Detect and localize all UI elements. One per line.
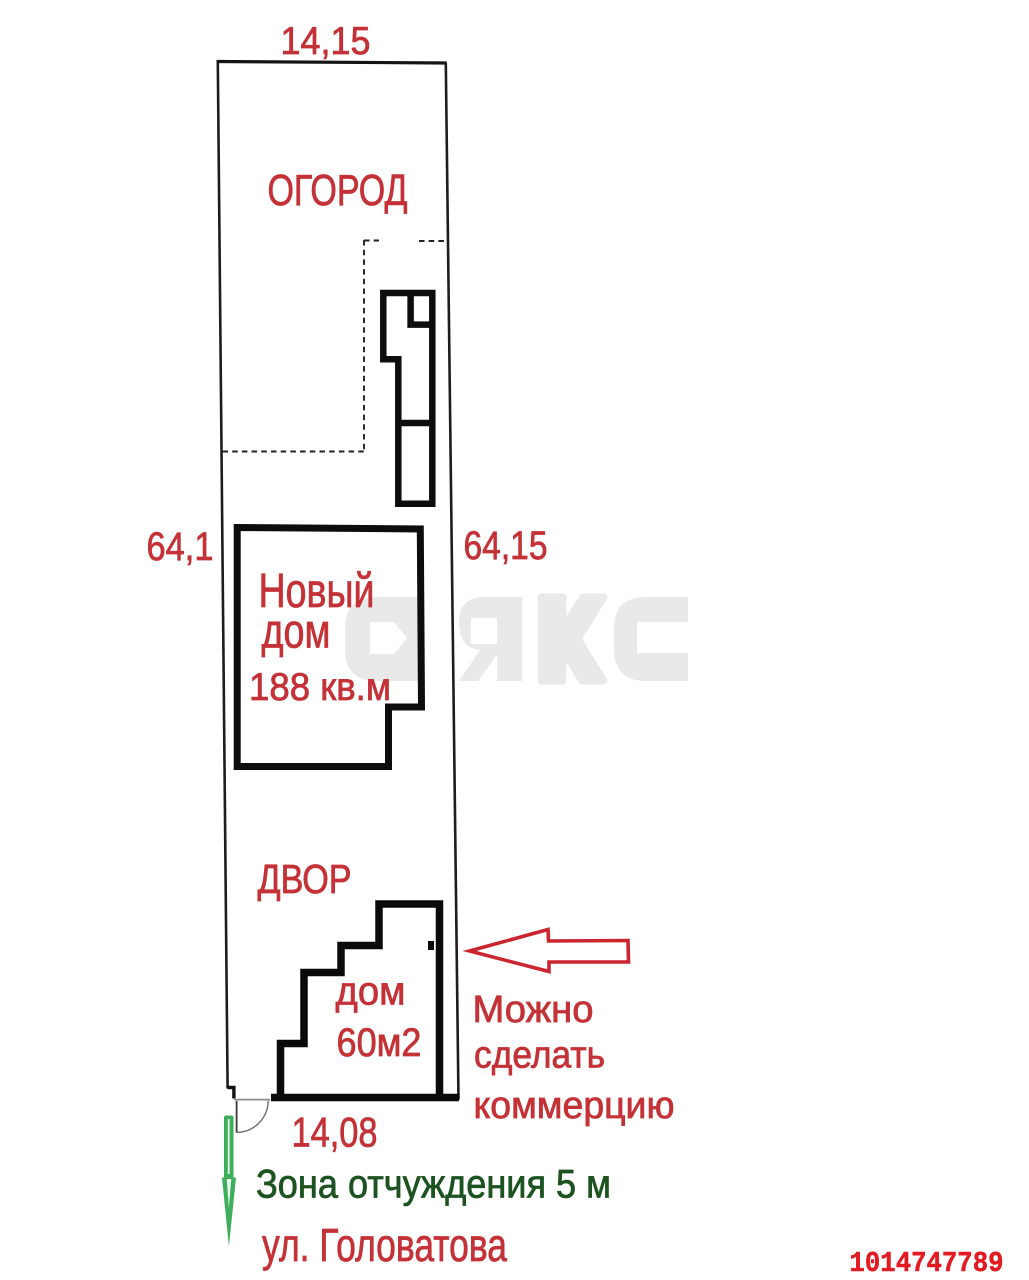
svg-text:ДВОР: ДВОР <box>258 856 352 902</box>
svg-text:Зона отчуждения 5 м: Зона отчуждения 5 м <box>256 1163 611 1207</box>
svg-text:дом: дом <box>336 970 406 1014</box>
svg-text:ул. Головатова: ул. Головатова <box>262 1219 507 1271</box>
svg-text:дом: дом <box>262 606 331 659</box>
svg-text:188 кв.м: 188 кв.м <box>249 666 391 709</box>
svg-text:14,08: 14,08 <box>292 1109 378 1156</box>
svg-text:1014747789: 1014747789 <box>850 1247 1004 1280</box>
svg-text:коммерцию: коммерцию <box>474 1085 675 1127</box>
svg-text:Можно: Можно <box>473 989 594 1031</box>
svg-text:сделать: сделать <box>474 1035 605 1077</box>
svg-text:64,15: 64,15 <box>464 524 548 568</box>
svg-text:64,1: 64,1 <box>147 525 214 569</box>
svg-text:60м2: 60м2 <box>337 1021 422 1065</box>
svg-text:14,15: 14,15 <box>281 20 371 63</box>
svg-text:ОГОРОД: ОГОРОД <box>268 166 408 215</box>
